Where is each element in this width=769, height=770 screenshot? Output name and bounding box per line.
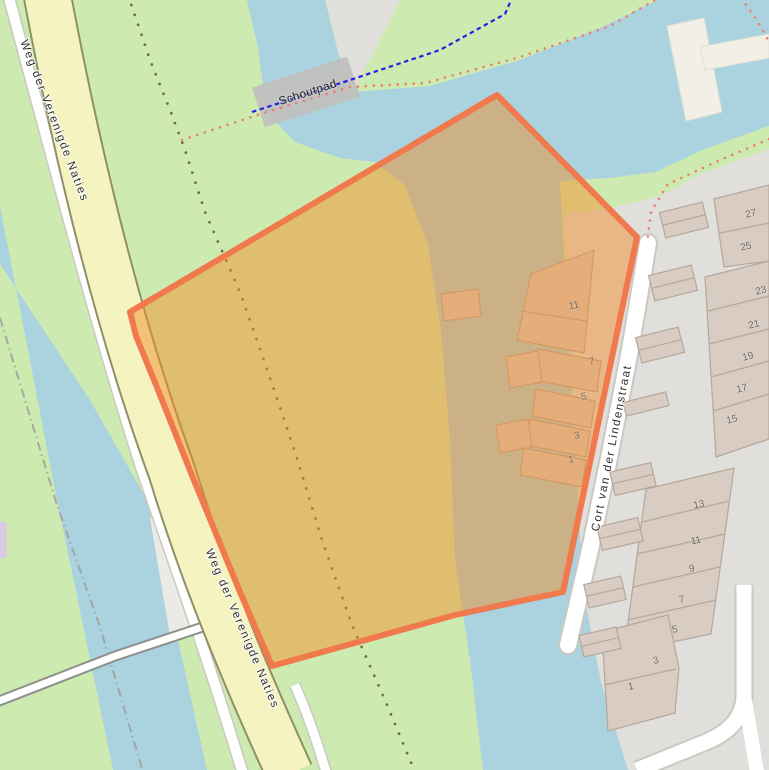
edge-building (0, 522, 7, 558)
map-canvas[interactable]: Weg der Verenigde NatiesWeg der Verenigd… (0, 0, 769, 770)
